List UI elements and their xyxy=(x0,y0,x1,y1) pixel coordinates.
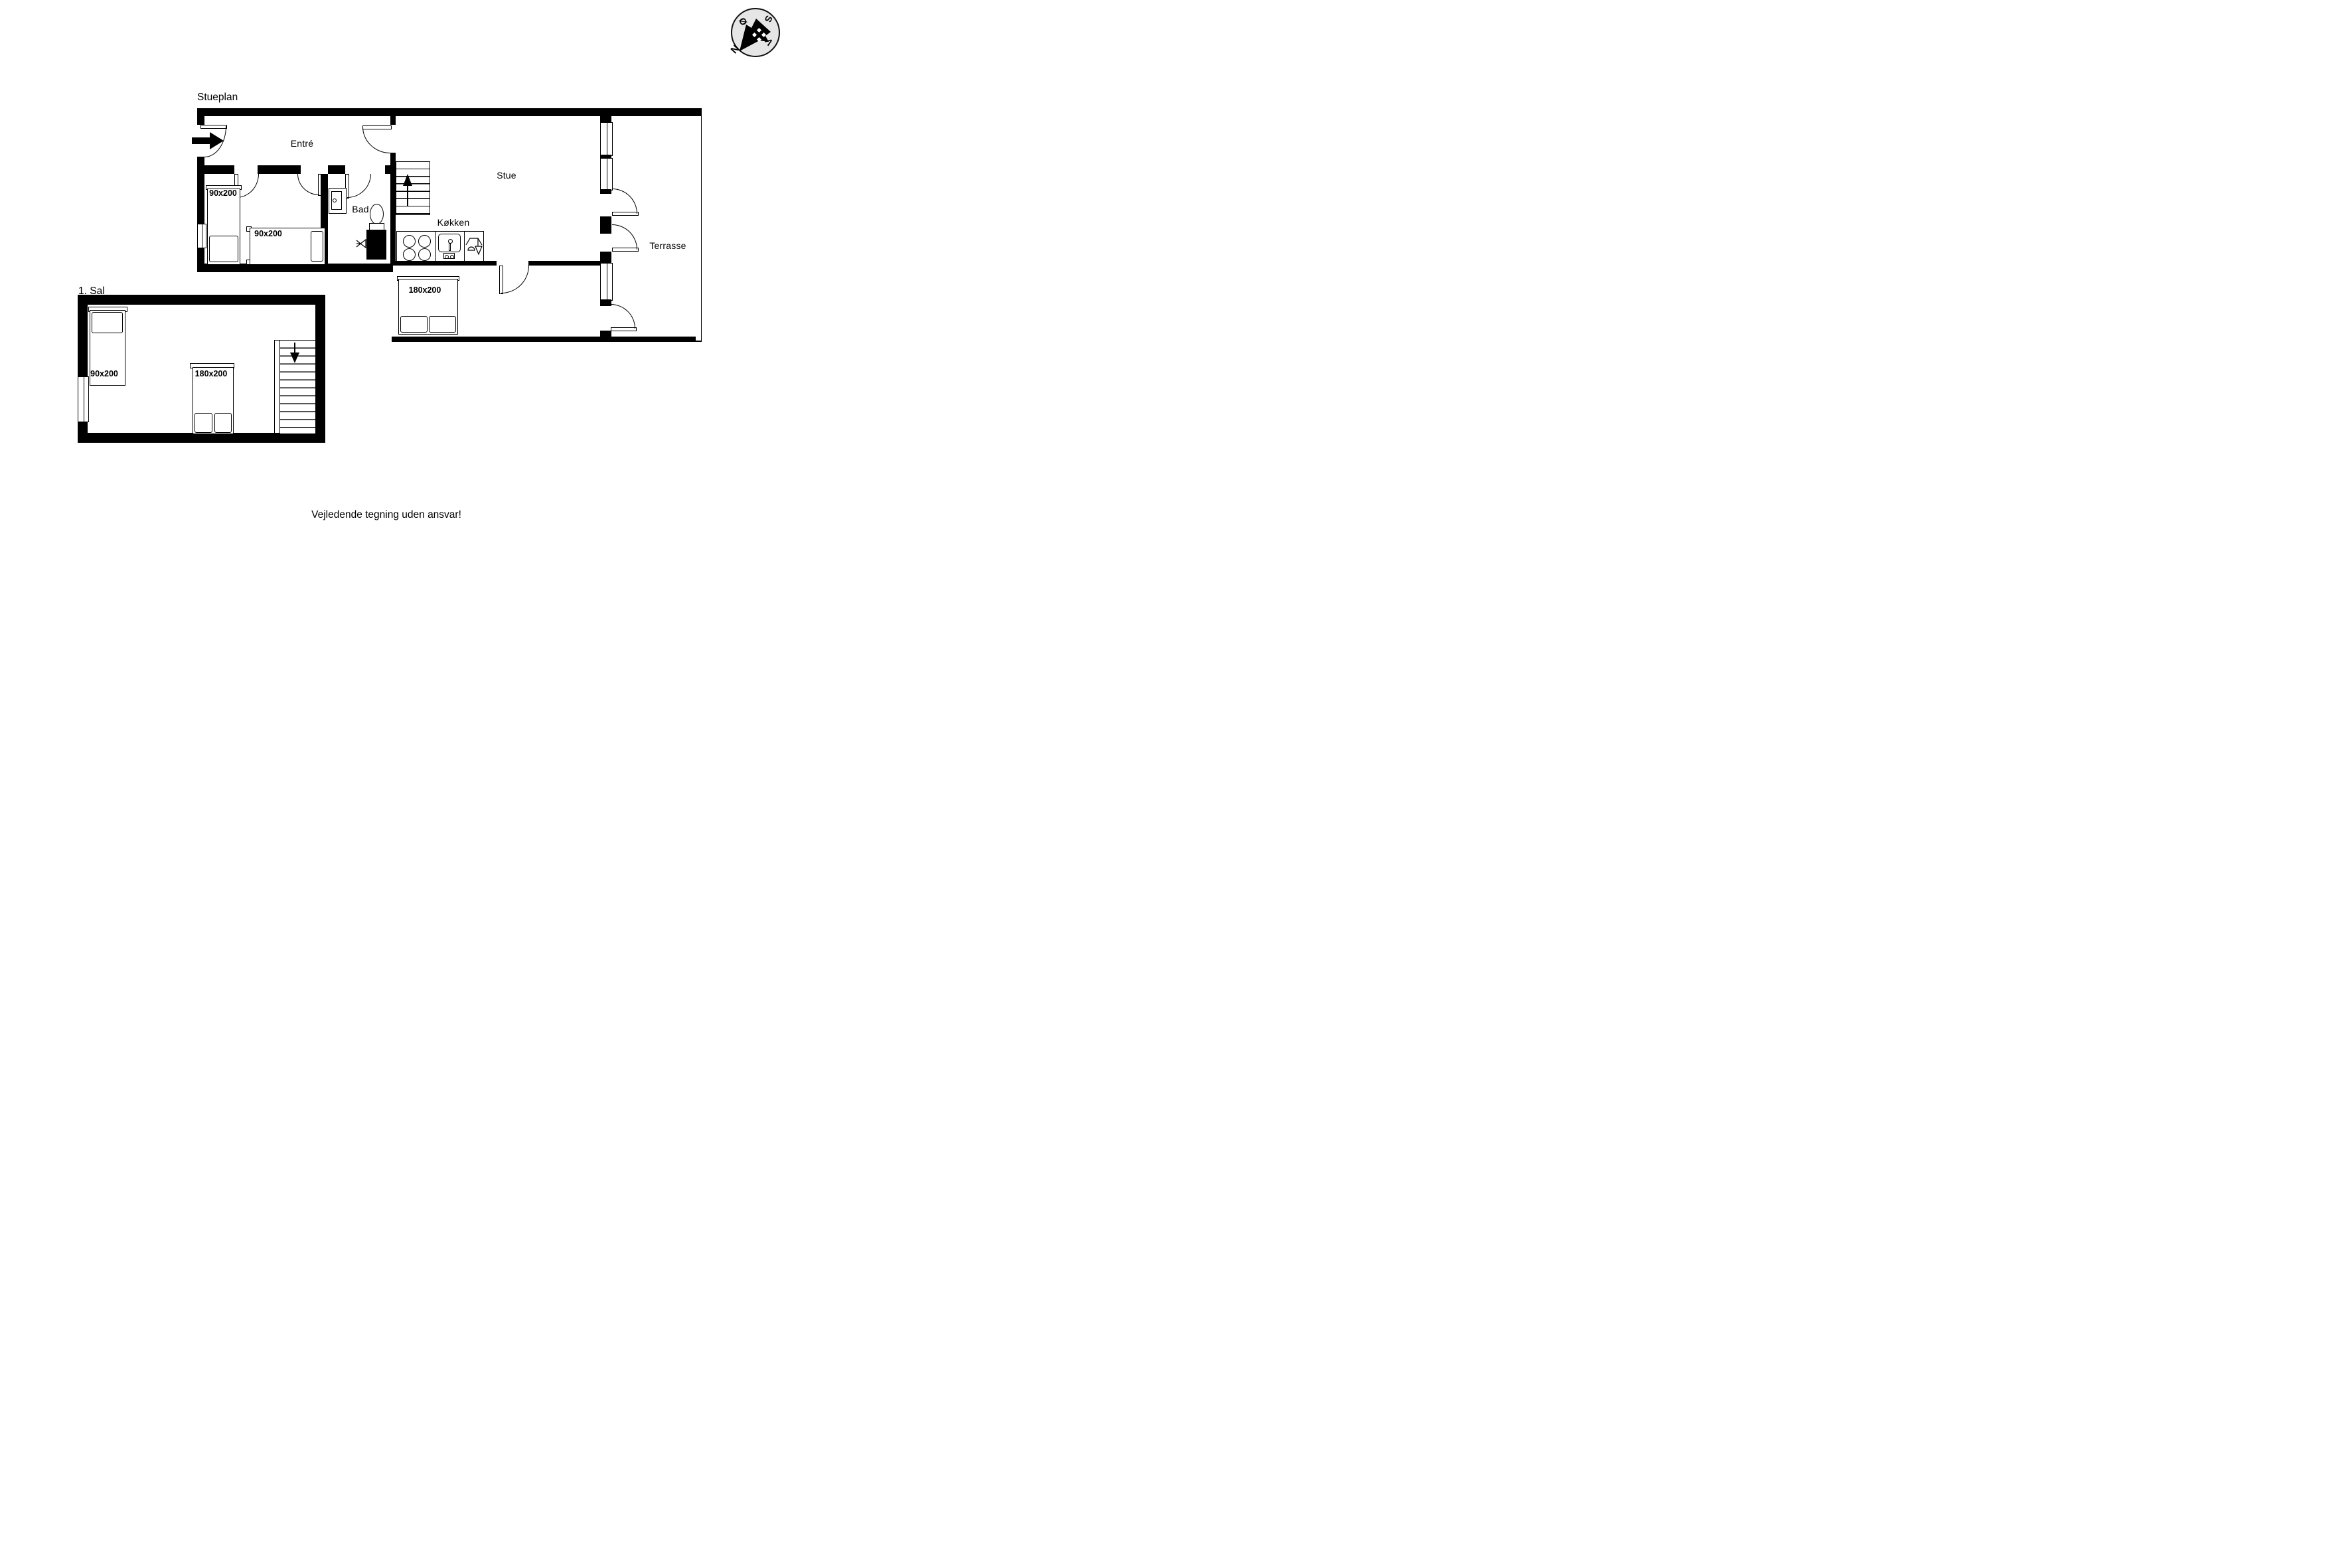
sal-window xyxy=(78,376,89,422)
sal-bed2-pillow-left xyxy=(195,413,212,433)
stove-burner xyxy=(418,248,431,261)
terrasse-wall-seg1 xyxy=(600,112,611,122)
terrasse-boundary-right xyxy=(701,116,702,342)
kitchen-counter xyxy=(396,231,484,262)
sal-wall-right xyxy=(315,295,325,443)
terrasse-wall-seg6 xyxy=(600,299,611,306)
room-label-terrasse: Terrasse xyxy=(649,240,686,251)
wall-divider-main xyxy=(390,153,396,264)
room-label-entre: Entré xyxy=(291,138,313,149)
disclaimer-text: Vejledende tegning uden ansvar! xyxy=(311,509,461,521)
wall-bad-top-seg1 xyxy=(328,165,345,174)
bed1-pillow xyxy=(209,236,238,262)
sal-wall-bottom xyxy=(78,433,325,443)
bed1-size-label: 90x200 xyxy=(209,189,237,198)
terrasse-wall-seg4 xyxy=(600,216,611,234)
bedroom3-window xyxy=(600,263,613,301)
sal-bed1-pillow xyxy=(92,312,123,333)
bedroom3-door-arc xyxy=(501,266,529,293)
terrasse-boundary-bottom xyxy=(696,341,702,342)
stairs-up-arrow-icon xyxy=(403,174,412,206)
bed3-pillow-left xyxy=(400,316,428,333)
stue-window-1 xyxy=(600,122,613,156)
sal-bed2-pillow-right xyxy=(214,413,232,433)
terrasse-door3-arc xyxy=(611,304,635,329)
bedroom-window xyxy=(197,224,206,248)
terrasse-wall-seg7 xyxy=(600,331,611,337)
bed3-pillow-right xyxy=(429,316,456,333)
room-label-bad: Bad xyxy=(352,204,369,214)
compass-rose-icon: Ø S V N xyxy=(730,7,781,58)
bad-door-arc xyxy=(347,174,371,198)
sal-wall-top xyxy=(78,295,325,305)
entry-arrow-icon xyxy=(192,132,224,149)
stairs-down-arrow-icon xyxy=(290,343,299,363)
stue-window-2 xyxy=(600,158,613,191)
terrasse-wall-seg5 xyxy=(600,252,611,263)
floor-plan-page: Ø S V N Stueplan Entré Bad xyxy=(0,0,784,522)
bed3-size-label: 180x200 xyxy=(409,285,441,295)
stove-burner xyxy=(403,235,416,248)
bed2-pillow xyxy=(311,231,323,262)
stue-door-arc xyxy=(362,127,390,153)
stairs-rail xyxy=(274,340,279,433)
terrasse-door1-arc xyxy=(612,189,637,214)
bedroom2-door-arc xyxy=(297,174,319,195)
stove-burner xyxy=(418,235,431,248)
wall-divider-stub xyxy=(390,116,396,125)
room-label-kokken: Køkken xyxy=(437,217,470,228)
shower-icon xyxy=(356,238,368,250)
stove-burner xyxy=(403,248,416,261)
duct-shaft xyxy=(366,230,386,260)
stairs-up xyxy=(396,161,430,215)
compass-icon: Ø S V N xyxy=(730,7,781,58)
wall-middle-seg1 xyxy=(390,261,497,266)
ground-floor-title: Stueplan xyxy=(197,92,238,104)
wall-entre-seg1 xyxy=(200,165,234,174)
room-label-stue: Stue xyxy=(497,170,516,181)
sink-faucet xyxy=(443,253,455,259)
toilet-bowl xyxy=(370,204,384,224)
sal-bed1-size-label: 90x200 xyxy=(90,369,118,378)
sink xyxy=(438,234,461,252)
sal-bed2-size-label: 180x200 xyxy=(195,369,228,378)
terrasse-door2-arc xyxy=(612,224,637,250)
hood-icon xyxy=(465,236,483,258)
cabinet xyxy=(329,188,347,214)
terrasse-wall-seg3 xyxy=(600,189,611,194)
wall-bottom-right-section xyxy=(392,337,696,342)
window-glazing xyxy=(202,224,202,248)
wall-entre-seg2 xyxy=(258,165,301,174)
bed2-size-label: 90x200 xyxy=(254,229,282,238)
wall-middle-seg2 xyxy=(528,261,604,266)
wall-top xyxy=(197,108,702,116)
wall-bad-top-seg2 xyxy=(385,165,390,174)
